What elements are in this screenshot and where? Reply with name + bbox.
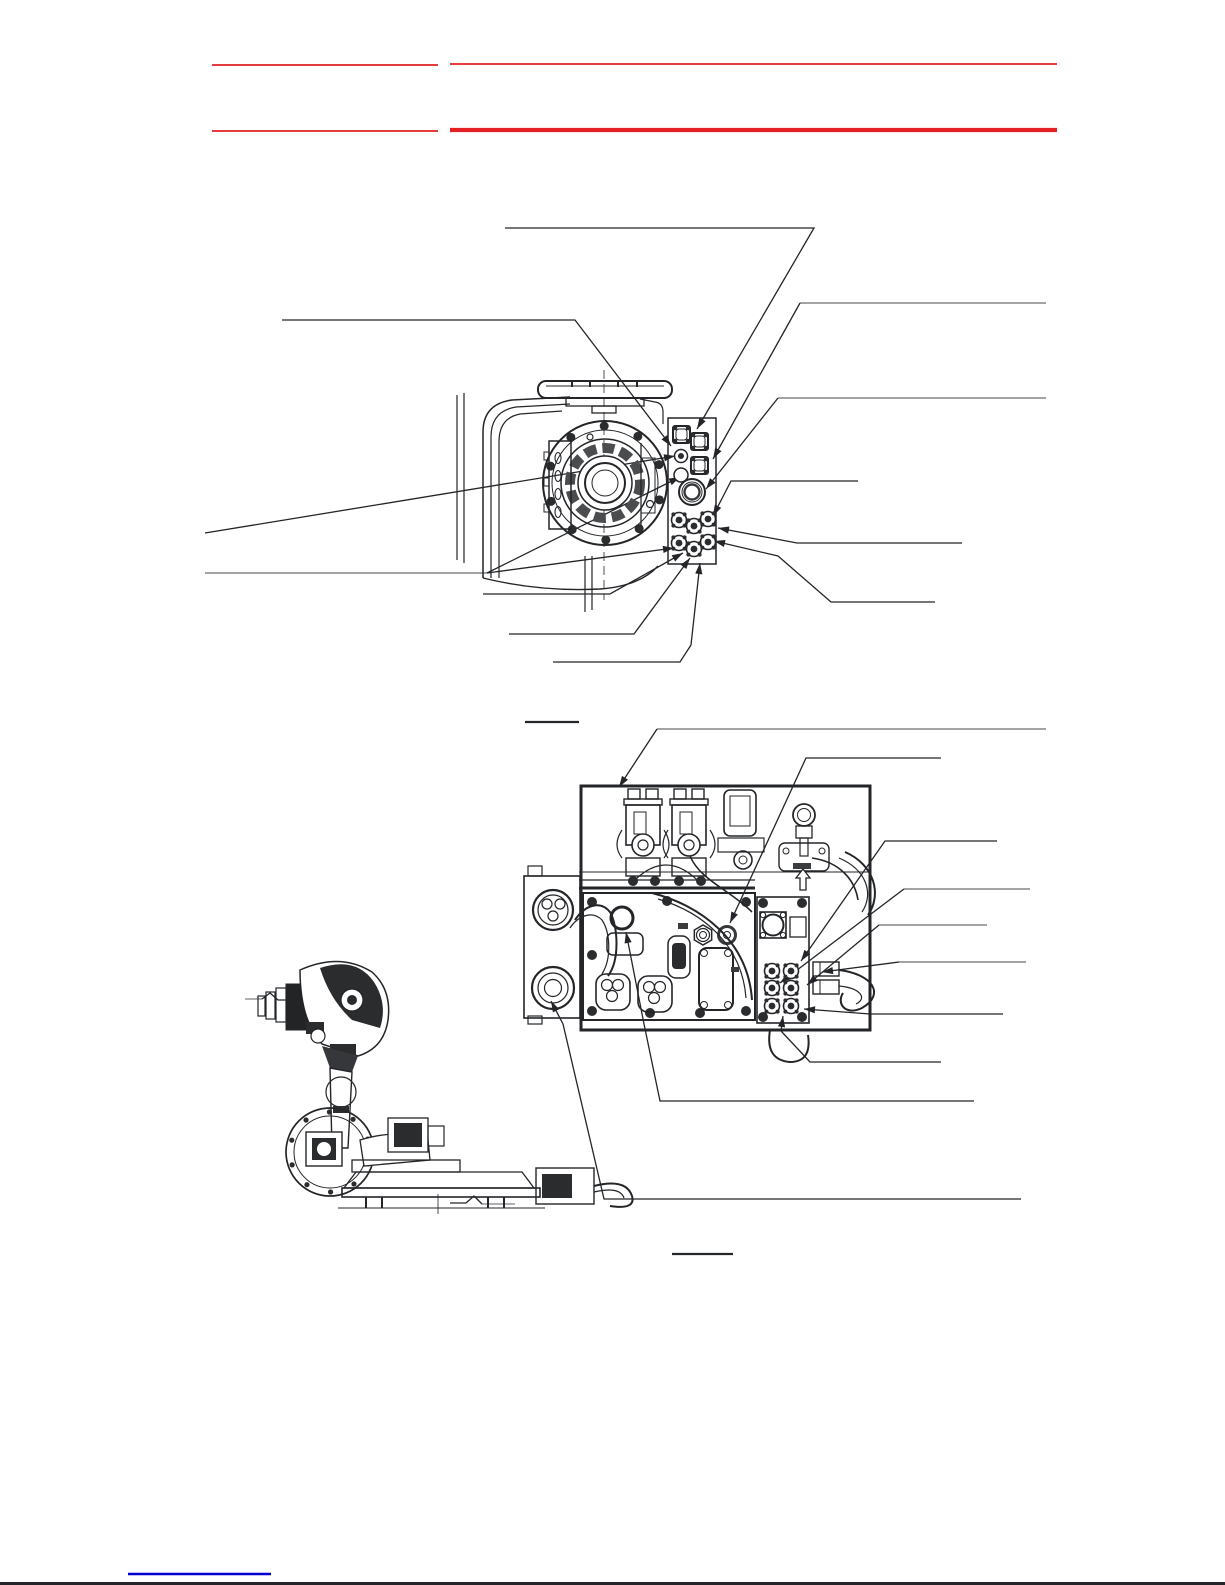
small-round-connector (683, 535, 687, 539)
gland-hole (555, 899, 565, 909)
leader-line (483, 553, 683, 594)
small-round-connector (698, 553, 702, 557)
leader-arrowhead (706, 478, 716, 489)
plate-bolt (587, 950, 597, 960)
flange-bolt (633, 432, 642, 441)
conn-bolt (760, 912, 765, 917)
footer-rules (0, 1574, 1225, 1584)
robot-head-disc-core (347, 995, 357, 1005)
robot-overview-figure (245, 961, 633, 1214)
rail-bolt (674, 876, 684, 886)
small-round-connector (783, 992, 787, 996)
shoulder-bolt (304, 1182, 309, 1187)
valve-assembly (692, 789, 704, 799)
square-connector (691, 457, 696, 462)
cable-loop (594, 1184, 633, 1207)
right-fitting-stem (796, 826, 812, 838)
leader-line (553, 563, 700, 662)
valve-assembly (674, 789, 686, 799)
center-motor-base (718, 838, 764, 852)
hose (570, 915, 609, 974)
small-round-connector (788, 1003, 795, 1010)
tiny-label (678, 923, 688, 929)
small-round-connector (705, 539, 712, 546)
square-connector (704, 433, 709, 438)
cable-loop (594, 1190, 624, 1198)
valve-assembly (617, 830, 622, 858)
valve-yoke-arc (630, 865, 702, 885)
rail-bolt (696, 876, 706, 886)
grommet-hole (649, 993, 660, 1004)
small-round-connector (783, 980, 787, 984)
right-fitting (793, 804, 815, 826)
valve-assembly (646, 789, 658, 799)
leader-arrowhead (713, 448, 722, 459)
square-connector (694, 436, 705, 447)
robot-wrist-flange (276, 988, 286, 1022)
cable-gland (533, 890, 573, 930)
small-round-connector (769, 1003, 776, 1010)
small-round-connector (776, 963, 780, 967)
small-round-connector (683, 512, 687, 516)
grommet (596, 974, 630, 1010)
valve-assembly (678, 834, 700, 856)
flange-bolt (600, 422, 609, 431)
small-round-connector (700, 534, 704, 538)
square-connector (704, 470, 709, 475)
wrist-handle-bar (538, 381, 672, 398)
small-round-connector (783, 998, 787, 1002)
base-plate (342, 1188, 540, 1197)
wrist-bracket (566, 398, 644, 406)
leader-line (487, 548, 674, 573)
small-round-connector (676, 540, 683, 547)
leader-arrowhead (672, 553, 683, 562)
small-bracket (790, 917, 806, 937)
hex-nut-ring (700, 932, 707, 939)
square-connector-bore (763, 915, 784, 936)
small-round-connector (700, 511, 704, 515)
bracket-bolt (819, 848, 825, 854)
small-round-connector (712, 534, 716, 538)
small-round-connector (776, 992, 780, 996)
round-connector (685, 485, 700, 500)
valve-assembly (680, 812, 692, 834)
conn-bolt (780, 912, 785, 917)
small-round-connector (795, 975, 799, 979)
small-round-connector (764, 992, 768, 996)
small-round-connector (769, 985, 776, 992)
grommet-hole (602, 980, 613, 991)
shoulder-bolt (350, 1117, 355, 1122)
conn-bolt (780, 932, 785, 937)
leader-arrowhead (661, 435, 671, 446)
plate-bolt (741, 1006, 751, 1016)
square-connector (676, 429, 687, 440)
square-connector-large (760, 912, 786, 938)
plate-bolt (797, 1012, 807, 1022)
leader-line (804, 1009, 1003, 1014)
small-round-connector (795, 998, 799, 1002)
square-connector (704, 457, 709, 462)
small-round-connector (705, 516, 712, 523)
wrist-body-contour (483, 397, 570, 578)
plate-bolt (587, 1006, 597, 1016)
small-round-connector (691, 546, 698, 553)
hex-nut-ring (697, 929, 710, 942)
small-round-connector (769, 968, 776, 975)
valve-assembly (628, 789, 640, 799)
shoulder-bolt (289, 1138, 294, 1143)
cable-gland (538, 973, 568, 1003)
flange-bolt (547, 497, 556, 506)
small-round-connector (795, 963, 799, 967)
plate-bolt (645, 1008, 655, 1018)
hose (769, 1030, 808, 1062)
leader-line (713, 481, 858, 516)
side-plate-slot (555, 489, 561, 500)
small-round-connector (776, 975, 780, 979)
leader-line (706, 398, 778, 489)
base-connector-figure (524, 729, 1046, 1199)
valve-assembly (670, 799, 708, 805)
small-round-connector (671, 512, 675, 516)
leader-line (718, 528, 962, 543)
leader-line (282, 320, 671, 446)
junction-box-dark (542, 1174, 572, 1198)
frame-bolt (701, 950, 708, 957)
hose-block (813, 980, 839, 994)
flange-bore (578, 456, 632, 510)
square-connector (694, 460, 705, 471)
center-motor (724, 790, 756, 836)
small-round-connector (712, 546, 716, 550)
screw (587, 434, 593, 440)
wrist-bracket (592, 406, 616, 413)
page-canvas (0, 0, 1225, 1585)
small-round-connector (783, 975, 787, 979)
shoulder-bolt (328, 1189, 333, 1194)
small-round-connector (776, 980, 780, 984)
flange-bolt (546, 462, 555, 471)
right-fitting (798, 809, 811, 822)
aux-motor-dark (394, 1123, 422, 1147)
small-round-connector (712, 511, 716, 515)
wrist-body-contour (499, 411, 562, 578)
gland-hole (542, 899, 552, 909)
shoulder-bolt (327, 1109, 332, 1114)
square-connector (686, 439, 691, 444)
small-round-connector (795, 992, 799, 996)
small-round-connector (671, 547, 675, 551)
leader-arrowhead (778, 1016, 785, 1027)
gland-hole (548, 911, 558, 921)
cable-bracket-tab (528, 866, 542, 876)
small-round-connector (686, 530, 690, 534)
tiny-label (793, 863, 811, 869)
center-fitting (734, 851, 752, 869)
small-round-connector (788, 968, 795, 975)
square-connector (686, 426, 691, 431)
leader-line (801, 841, 997, 961)
valve-assembly (632, 834, 654, 856)
plate-bolt (758, 898, 768, 908)
grommet-hole (644, 982, 655, 993)
small-round-connector (795, 1010, 799, 1014)
small-round-connector (764, 980, 768, 984)
flange-bolt (635, 524, 644, 533)
shoulder-bolt (303, 1117, 308, 1122)
small-round-connector (776, 998, 780, 1002)
plate-bolt (797, 898, 807, 908)
small-round-connector (676, 517, 683, 524)
bolt-connector-core (678, 453, 684, 459)
valve-assembly (624, 799, 662, 805)
valve-assembly (710, 830, 715, 858)
document-page (0, 0, 1225, 1585)
leader-arrowhead (664, 454, 675, 461)
shoulder-motor-eye (317, 1142, 331, 1156)
shoulder-bolt (351, 1181, 356, 1186)
small-round-connector (764, 1010, 768, 1014)
cutout-connector (672, 943, 686, 969)
small-round-connector (764, 963, 768, 967)
shoulder-bolt (290, 1162, 295, 1167)
square-connector (673, 426, 678, 431)
square-connector (691, 470, 696, 475)
square-connector (704, 446, 709, 451)
tiny-label (731, 967, 739, 972)
leader-arrowhead (697, 418, 706, 429)
small-round-connector (691, 523, 698, 530)
small-round-connector (671, 524, 675, 528)
plate-cutout (607, 933, 643, 955)
leader-arrowhead (730, 912, 738, 923)
center-fitting (739, 856, 747, 864)
small-round-connector (686, 553, 690, 557)
small-round-connector (686, 541, 690, 545)
valve-assembly (634, 812, 646, 834)
robot-head-circle (311, 1029, 325, 1043)
small-round-connector (776, 1010, 780, 1014)
flange-bolt (601, 535, 610, 544)
square-connector (673, 439, 678, 444)
grommet-hole (655, 982, 666, 993)
grommet-hole (613, 980, 624, 991)
wrist-connector-figure (205, 228, 1046, 662)
frame-bolt (725, 1002, 732, 1009)
frame-bolt (701, 1002, 708, 1009)
small-round-connector (788, 985, 795, 992)
base-pedestal (344, 1172, 534, 1188)
small-round-connector (671, 535, 675, 539)
small-round-connector (764, 998, 768, 1002)
small-round-connector (795, 980, 799, 984)
small-round-connector (712, 523, 716, 527)
small-round-connector (764, 975, 768, 979)
header-rules (212, 64, 1057, 131)
small-round-connector (783, 1010, 787, 1014)
plate-frame-cutout (699, 948, 733, 1010)
round-fitting (719, 927, 736, 944)
screw (647, 501, 654, 508)
right-fitting-post (800, 838, 808, 856)
grommet-hole (607, 991, 618, 1002)
aux-motor-cylinder (428, 1126, 444, 1146)
square-connector (691, 433, 696, 438)
round-connector (679, 479, 705, 505)
grommet (638, 976, 672, 1012)
center-motor-inner (730, 796, 750, 826)
small-round-connector (783, 963, 787, 967)
rail-bolt (650, 876, 660, 886)
bracket-bolt (783, 848, 789, 854)
small-round-connector (686, 518, 690, 522)
leader-line (714, 541, 935, 602)
leader-line (509, 558, 690, 634)
square-connector (691, 446, 696, 451)
small-round-connector (698, 530, 702, 534)
rail-bolt (628, 876, 638, 886)
small-round-connector (700, 523, 704, 527)
cable-gland (545, 980, 562, 997)
flange-bolt (655, 495, 664, 504)
small-round-connector (700, 546, 704, 550)
conn-bolt (760, 932, 765, 937)
flange-bolt (654, 460, 663, 469)
leader-arrowhead (718, 527, 729, 534)
